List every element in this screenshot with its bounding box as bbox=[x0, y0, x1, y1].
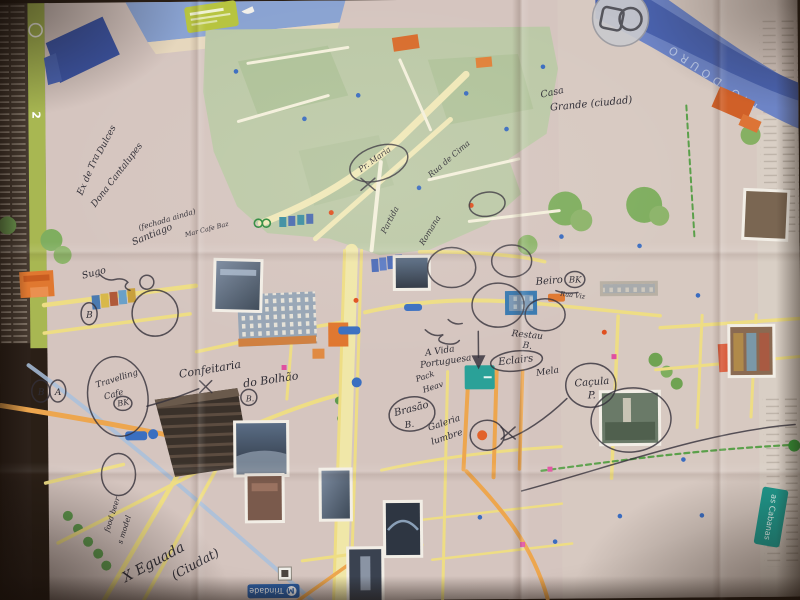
metro-circle-1 bbox=[148, 429, 158, 439]
street-index-panel bbox=[0, 3, 33, 600]
note-circled-b: B bbox=[37, 388, 45, 398]
note-restau-b: B. bbox=[521, 341, 533, 352]
map-sheet: 2 RIO DOURO bbox=[0, 0, 800, 600]
note-beiro-bk: BK bbox=[568, 275, 582, 285]
teal-marker-text-lines bbox=[484, 376, 492, 378]
trindade-station-label: M Trindade bbox=[247, 584, 299, 598]
panel-number: 2 bbox=[29, 111, 42, 119]
note-brasao-b: B. bbox=[403, 420, 415, 431]
trindade-text: Trindade bbox=[249, 586, 284, 595]
note-circled-a: A bbox=[54, 388, 62, 398]
note-circled-b-left: B bbox=[85, 311, 93, 321]
note-circled-b-bolhao: B. bbox=[245, 394, 255, 403]
transit-pill-1 bbox=[125, 431, 147, 440]
map-artwork: 2 RIO DOURO bbox=[0, 0, 800, 600]
transit-pill-2 bbox=[338, 326, 360, 334]
transit-pill-3 bbox=[404, 304, 422, 311]
note-beiro: Beiro bbox=[534, 275, 563, 288]
note-cacula-p: P. bbox=[587, 390, 596, 401]
metro-circle-2 bbox=[352, 377, 362, 387]
metro-letter: M bbox=[287, 586, 295, 595]
photo-of-annotated-paper-map: 2 RIO DOURO bbox=[0, 0, 800, 600]
metro-entrance-glyph bbox=[281, 570, 288, 577]
orange-poi-in-circle bbox=[477, 430, 487, 440]
